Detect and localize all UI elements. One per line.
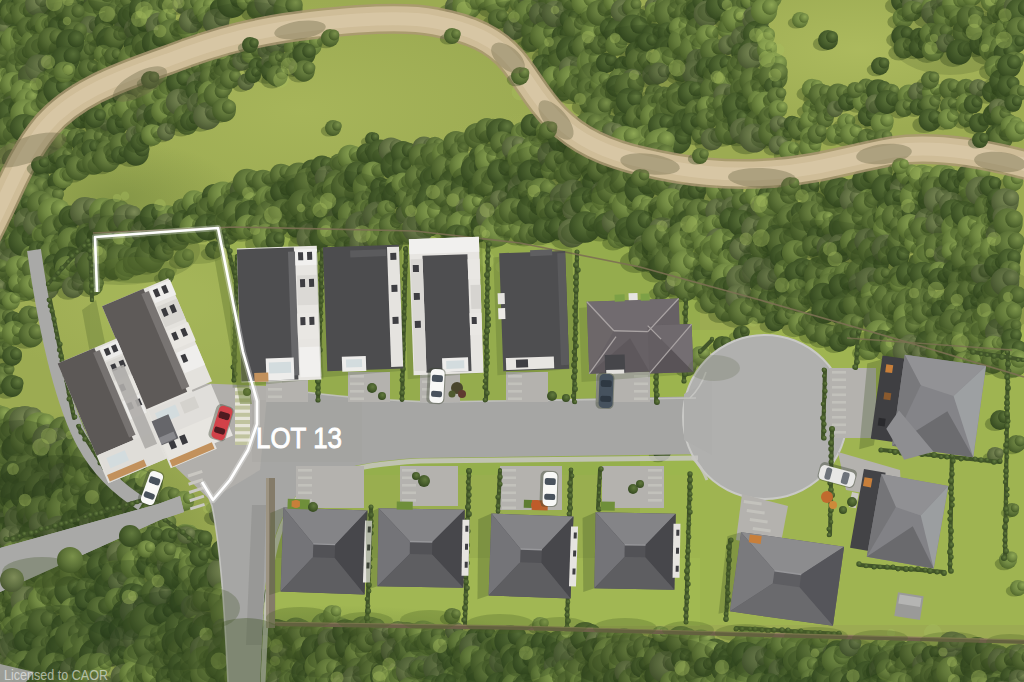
svg-text:LOT 13: LOT 13 (256, 421, 342, 454)
svg-text:Licensed to CAOR: Licensed to CAOR (4, 666, 108, 682)
